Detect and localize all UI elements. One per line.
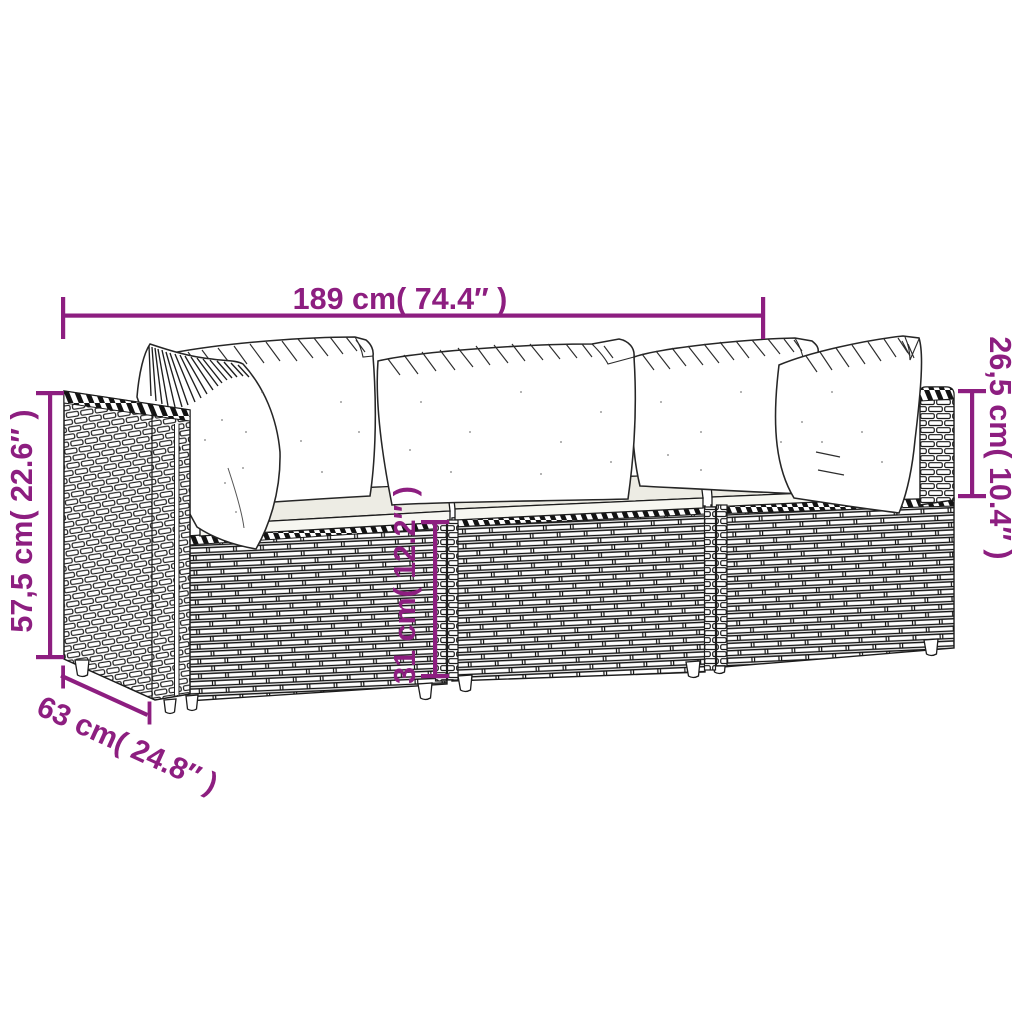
svg-text:31 cm( 12.2″ ): 31 cm( 12.2″ ) (388, 486, 422, 684)
svg-text:26,5 cm( 10.4″ ): 26,5 cm( 10.4″ ) (983, 336, 1017, 559)
svg-text:189 cm( 74.4″ ): 189 cm( 74.4″ ) (293, 282, 508, 316)
svg-text:57,5 cm( 22.6″ ): 57,5 cm( 22.6″ ) (5, 409, 39, 632)
